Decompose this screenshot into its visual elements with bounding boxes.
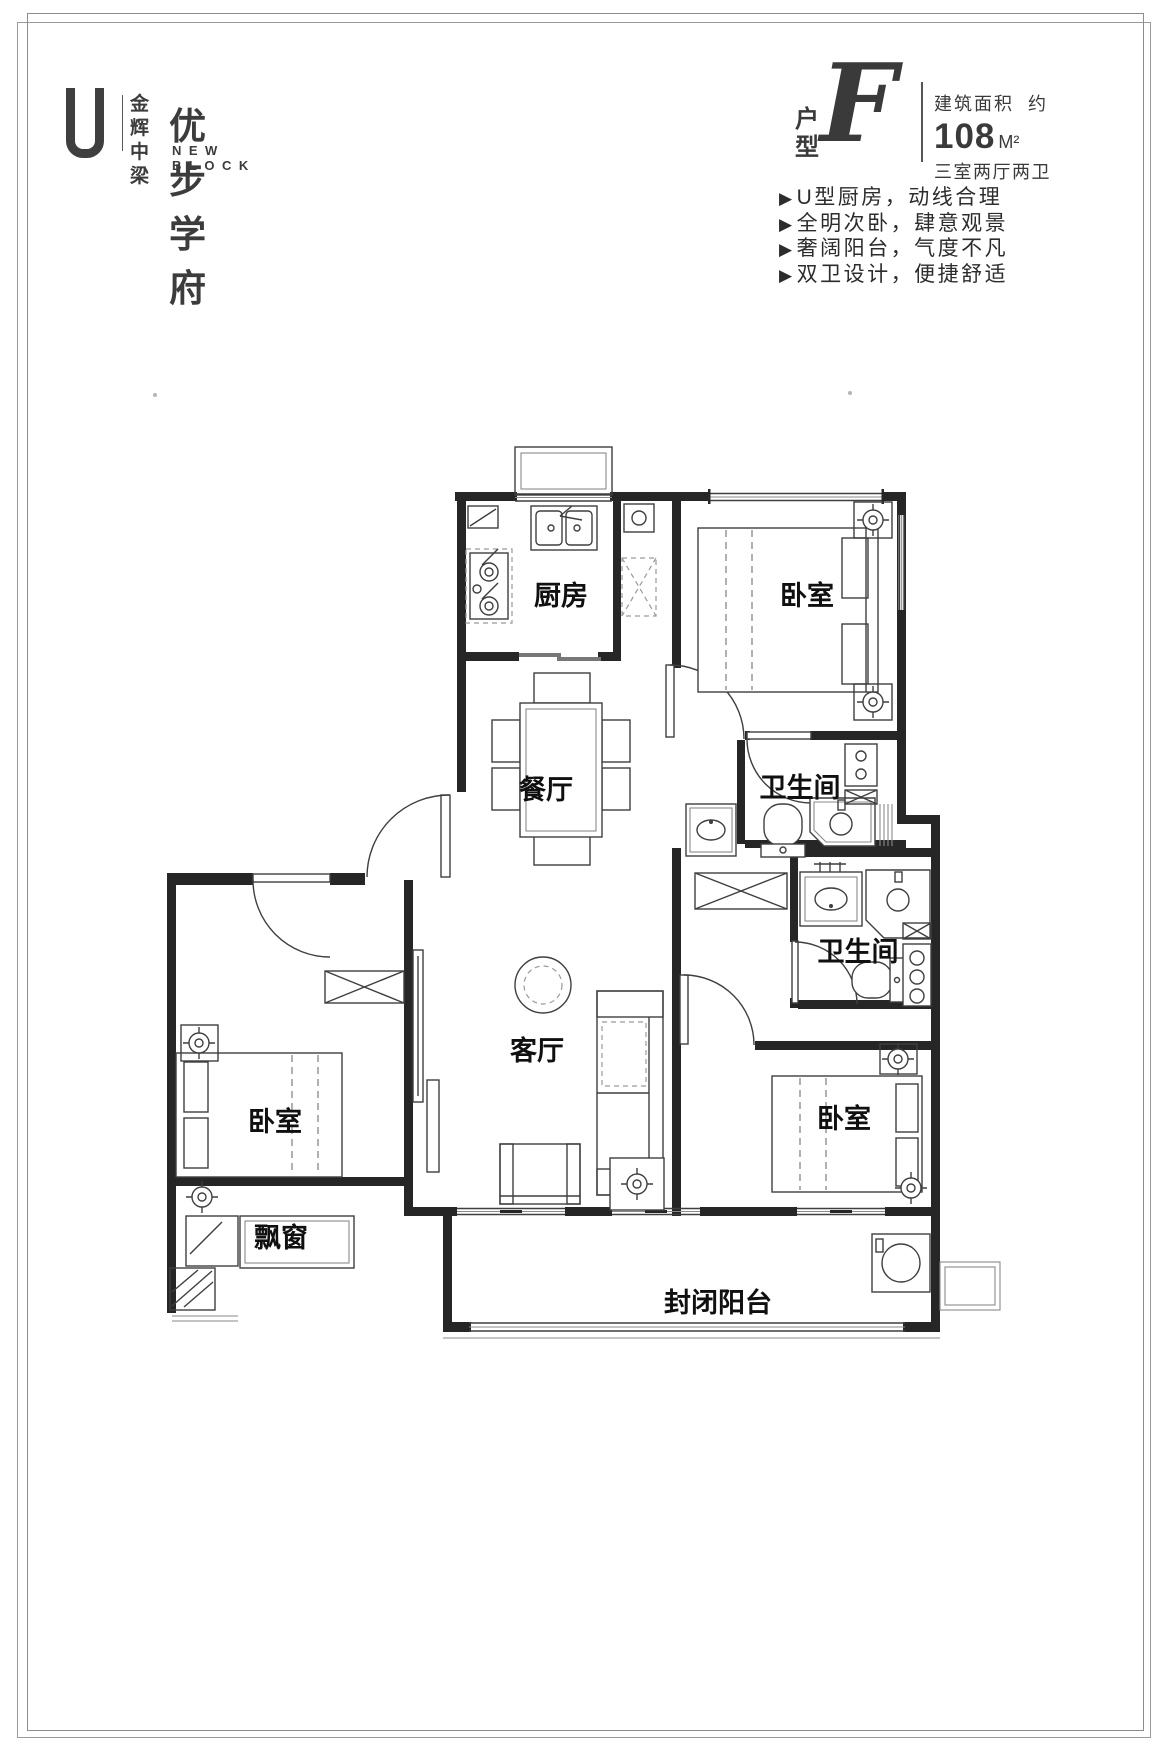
balcony-fixtures	[872, 1234, 930, 1292]
floor-plan: 厨房卧室卫生间餐厅客厅卧室飘窗卫生间卧室封闭阳台	[0, 0, 1168, 1750]
bath2-fixtures	[800, 862, 931, 1006]
room-label: 封闭阳台	[664, 1287, 772, 1318]
room-label: 餐厅	[519, 775, 573, 805]
room-label: 卧室	[780, 580, 834, 611]
room-label: 客厅	[510, 1035, 564, 1066]
room-label: 卧室	[248, 1106, 302, 1137]
bed-left	[176, 971, 404, 1177]
room-label: 卫生间	[760, 773, 841, 803]
furniture	[176, 502, 1000, 1310]
bed-top-right	[698, 502, 892, 720]
living-furniture	[413, 950, 664, 1210]
room-label: 卧室	[817, 1103, 871, 1134]
ac-platform	[940, 1262, 1000, 1310]
room-label: 飘窗	[254, 1222, 308, 1253]
room-label: 厨房	[534, 581, 588, 611]
room-label: 卫生间	[818, 937, 899, 967]
dining-set	[492, 673, 630, 865]
floorplan-page: { "logo": { "brand_line1": "金辉", "brand_…	[0, 0, 1168, 1750]
